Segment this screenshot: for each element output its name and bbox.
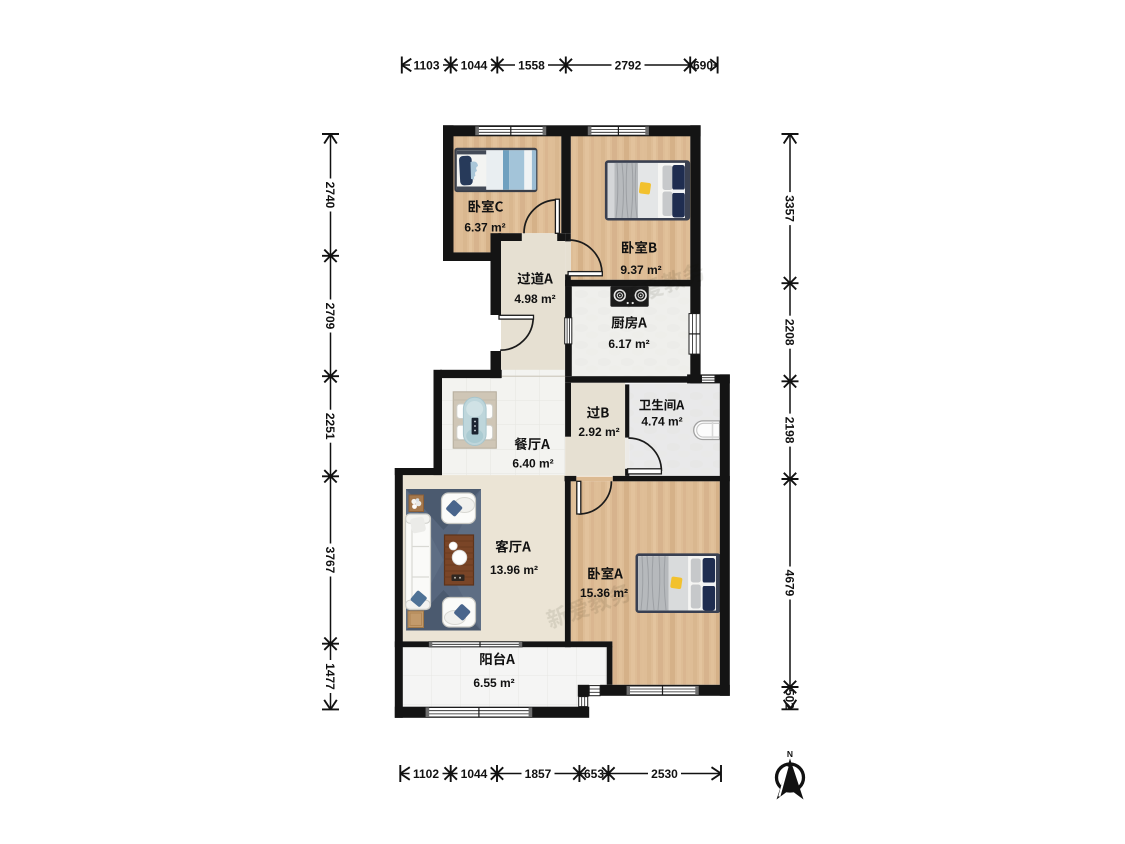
svg-text:1477: 1477 — [323, 663, 337, 690]
svg-text:2530: 2530 — [651, 767, 678, 781]
svg-text:2792: 2792 — [615, 59, 642, 73]
svg-text:15.36 m²: 15.36 m² — [580, 586, 628, 600]
svg-text:2709: 2709 — [323, 303, 337, 330]
svg-text:2740: 2740 — [323, 182, 337, 209]
svg-text:3767: 3767 — [323, 547, 337, 574]
svg-text:2251: 2251 — [323, 413, 337, 440]
svg-text:13.96 m²: 13.96 m² — [490, 563, 538, 577]
svg-text:4.98 m²: 4.98 m² — [514, 292, 555, 306]
svg-text:N: N — [787, 749, 793, 759]
svg-text:3357: 3357 — [783, 195, 797, 222]
svg-text:6.17 m²: 6.17 m² — [608, 337, 649, 351]
svg-text:1558: 1558 — [518, 59, 545, 73]
svg-text:1857: 1857 — [525, 767, 552, 781]
svg-text:1044: 1044 — [461, 767, 488, 781]
svg-text:2198: 2198 — [783, 417, 797, 444]
svg-text:1044: 1044 — [461, 59, 488, 73]
svg-text:1103: 1103 — [413, 59, 439, 73]
svg-text:6.40 m²: 6.40 m² — [512, 457, 553, 471]
svg-text:2208: 2208 — [783, 319, 797, 346]
svg-text:4679: 4679 — [783, 570, 797, 597]
svg-text:1102: 1102 — [413, 767, 439, 781]
svg-text:6.55 m²: 6.55 m² — [473, 676, 514, 690]
svg-text:6.37 m²: 6.37 m² — [464, 221, 505, 235]
svg-text:9.37 m²: 9.37 m² — [620, 263, 661, 277]
svg-text:653: 653 — [584, 767, 604, 781]
svg-text:4.74 m²: 4.74 m² — [641, 415, 682, 429]
svg-text:2.92 m²: 2.92 m² — [578, 425, 619, 439]
